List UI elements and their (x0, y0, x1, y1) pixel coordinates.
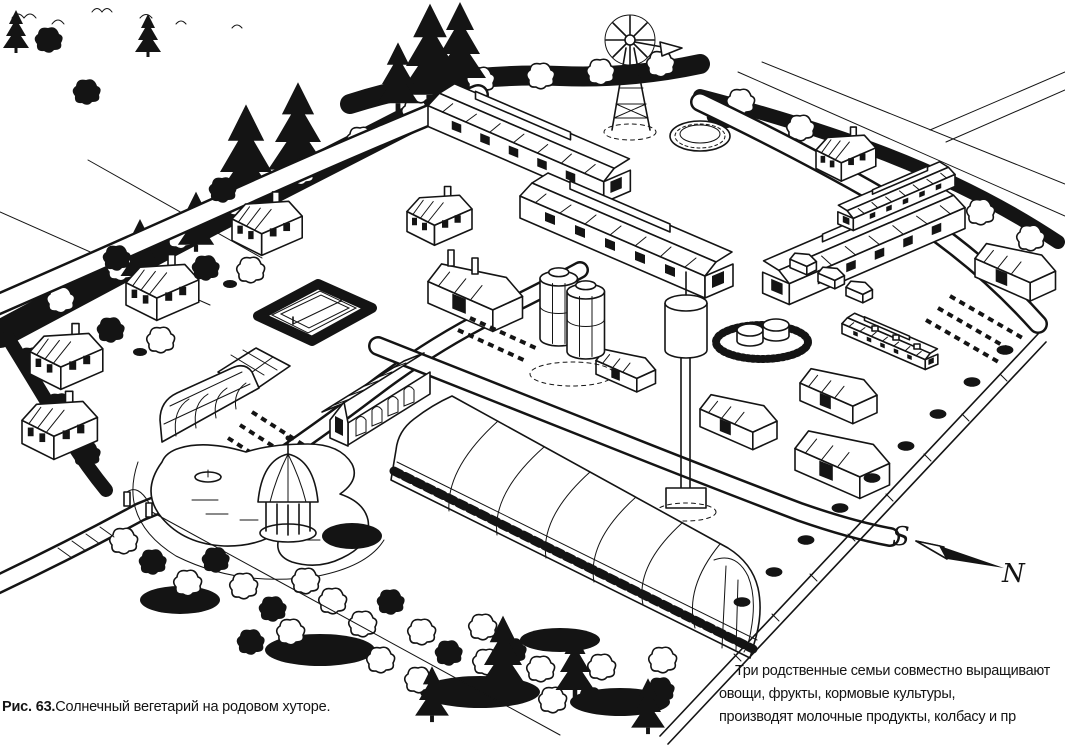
figure-caption: Рис. 63.Солнечный вегетарий на родовом х… (2, 699, 330, 715)
figure-title: Солнечный вегетарий на родовом хуторе. (55, 699, 330, 715)
compass: S N (892, 522, 1026, 589)
figure-annotation: Три родственные семьи совместно выращива… (719, 660, 1065, 729)
barn-long-north (428, 84, 630, 203)
round-tank (670, 121, 730, 151)
sheds (596, 349, 890, 498)
solar-vegetarium-greenhouse (391, 396, 760, 658)
hutch-row (842, 313, 938, 369)
compass-north-label: N (1001, 559, 1026, 589)
figure-number: Рис. 63. (2, 699, 55, 715)
homestead-illustration: S N (0, 0, 1065, 751)
conservatory (160, 366, 259, 442)
cottage-north (407, 187, 472, 246)
figure-page: S N Рис. 63.Солнечный вегетарий на родов… (0, 0, 1065, 751)
annotation-line-1: Три родственные семьи совместно выращива… (719, 660, 1065, 683)
tennis-court (258, 284, 372, 341)
annotation-line-3: производят молочные продукты, колбасу и … (719, 706, 1065, 729)
annotation-line-2: овощи, фрукты, кормовые культуры, (719, 683, 1065, 706)
compass-south-label: S (892, 522, 910, 552)
feed-tanks (716, 319, 808, 359)
